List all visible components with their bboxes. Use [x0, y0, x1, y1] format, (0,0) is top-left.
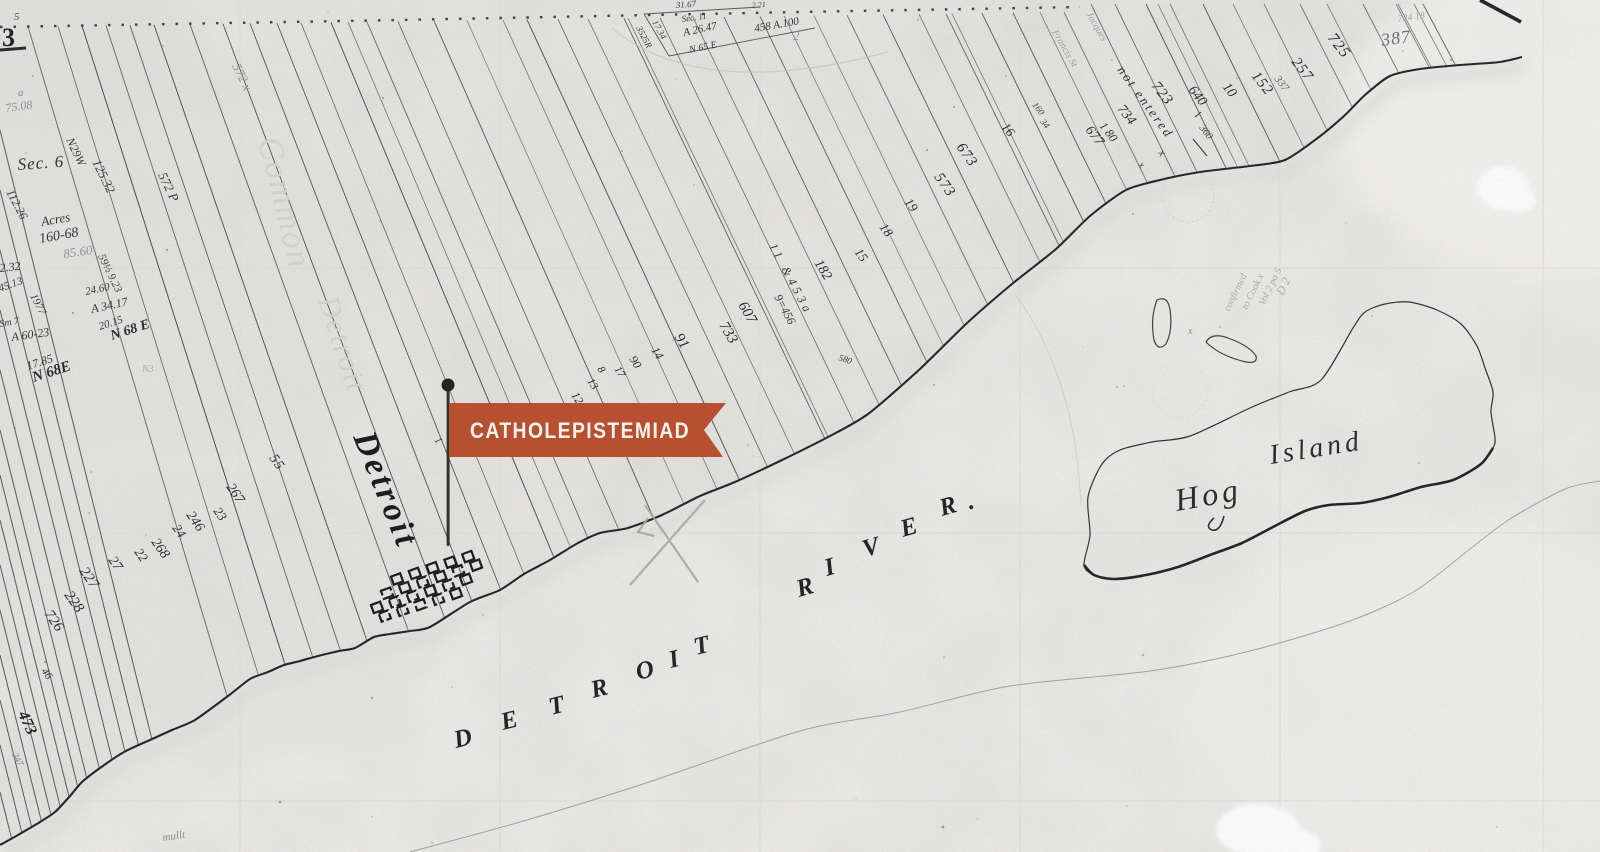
svg-text:CATHOLEPISTEMIAD: CATHOLEPISTEMIAD: [470, 419, 690, 443]
